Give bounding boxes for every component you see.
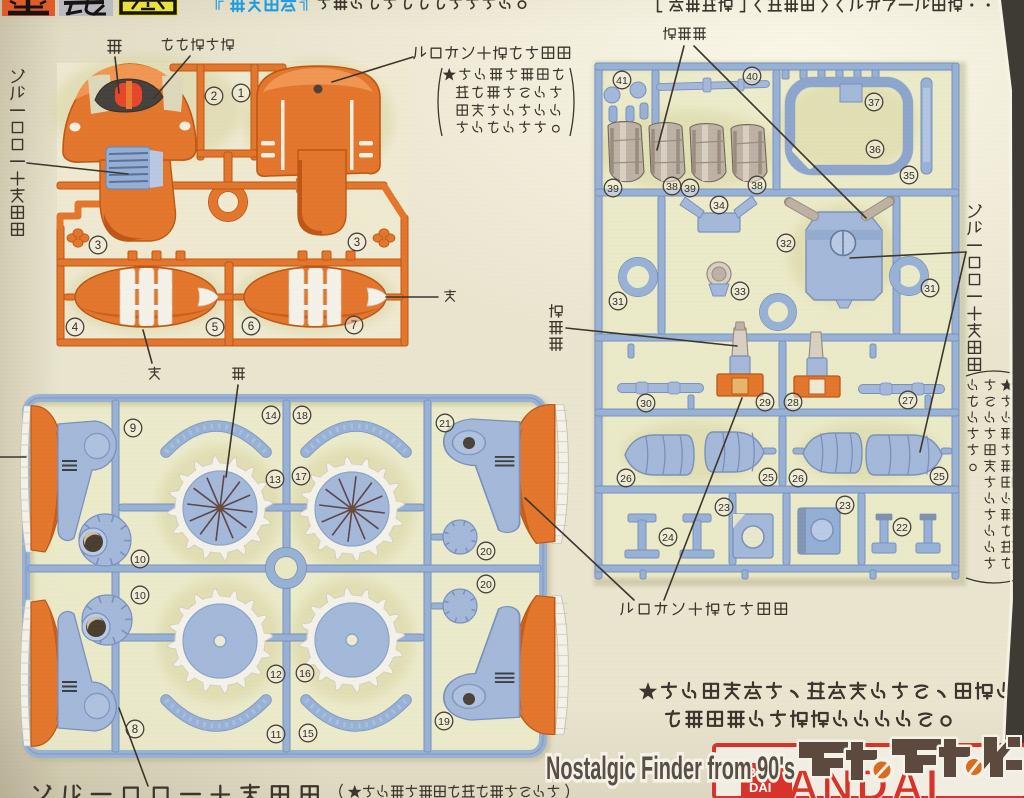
svg-text:Nostalgic Finder from 90's: Nostalgic Finder from 90's [546,750,795,786]
